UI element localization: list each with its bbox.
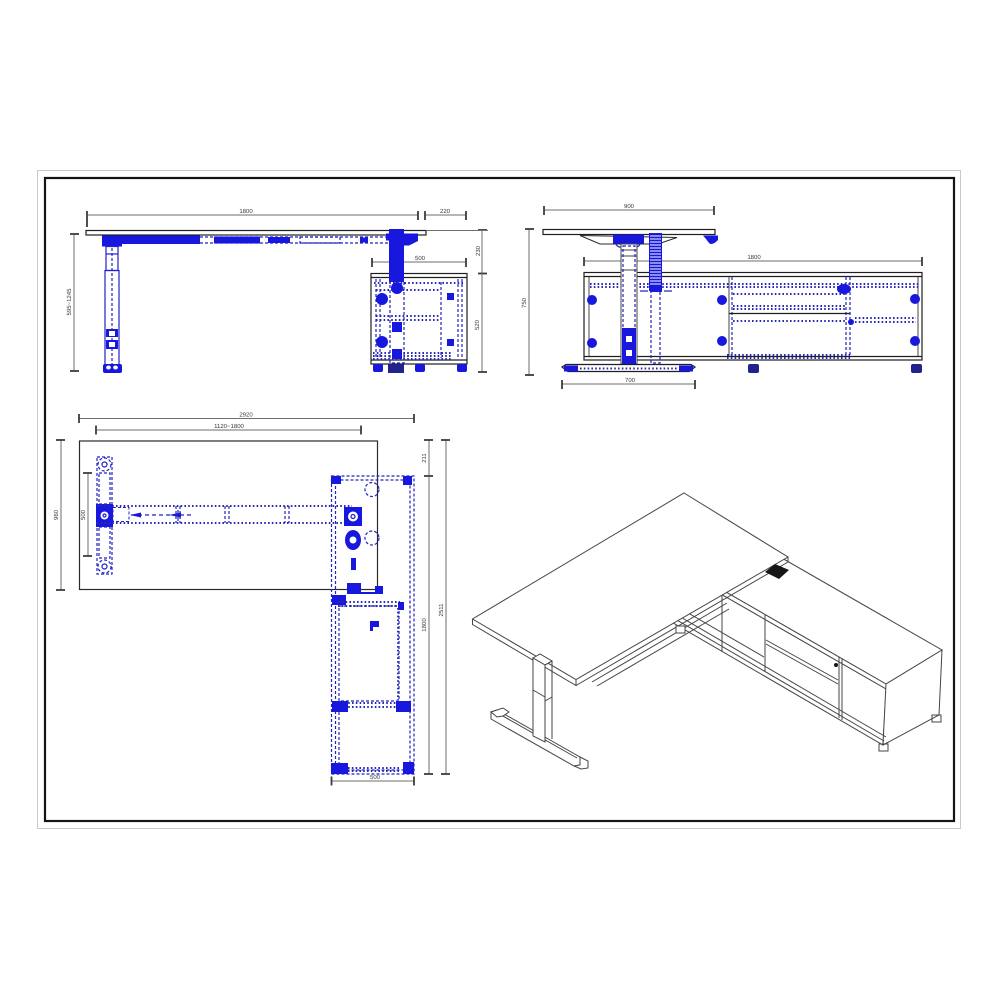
svg-text:500: 500 xyxy=(80,509,87,520)
svg-text:230: 230 xyxy=(475,245,482,256)
svg-text:900: 900 xyxy=(624,203,635,210)
svg-text:1800: 1800 xyxy=(747,254,761,261)
svg-text:211: 211 xyxy=(421,453,428,463)
svg-text:1120~1800: 1120~1800 xyxy=(214,423,244,430)
svg-text:960: 960 xyxy=(53,509,60,520)
svg-text:520: 520 xyxy=(474,319,481,330)
svg-text:1800: 1800 xyxy=(421,618,428,632)
svg-text:220: 220 xyxy=(440,208,451,215)
svg-text:2511: 2511 xyxy=(438,603,445,617)
svg-text:500: 500 xyxy=(415,255,426,262)
svg-text:750: 750 xyxy=(521,297,528,308)
svg-text:1800: 1800 xyxy=(239,208,253,215)
svg-text:2920: 2920 xyxy=(239,412,253,419)
svg-text:595~1245: 595~1245 xyxy=(66,288,73,316)
svg-text:700: 700 xyxy=(625,377,636,384)
svg-text:500: 500 xyxy=(370,774,381,781)
